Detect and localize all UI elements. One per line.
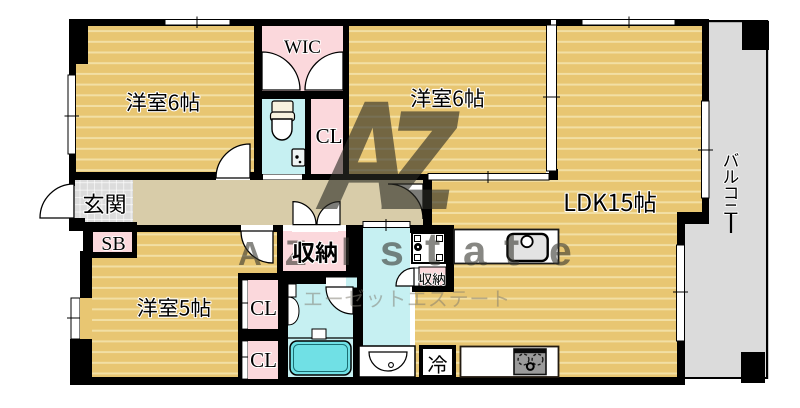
- svg-text:WIC: WIC: [284, 37, 321, 58]
- svg-text:t: t: [425, 223, 440, 275]
- svg-text:e: e: [549, 228, 572, 274]
- svg-text:CL: CL: [250, 348, 277, 372]
- svg-text:A: A: [238, 235, 262, 272]
- svg-text:CL: CL: [250, 296, 277, 320]
- svg-text:a: a: [463, 227, 487, 274]
- svg-text:SB: SB: [101, 233, 125, 255]
- svg-text:l: l: [341, 232, 352, 274]
- svg-text:CL: CL: [316, 124, 343, 148]
- svg-text:t: t: [504, 223, 519, 275]
- svg-text:s: s: [380, 227, 404, 275]
